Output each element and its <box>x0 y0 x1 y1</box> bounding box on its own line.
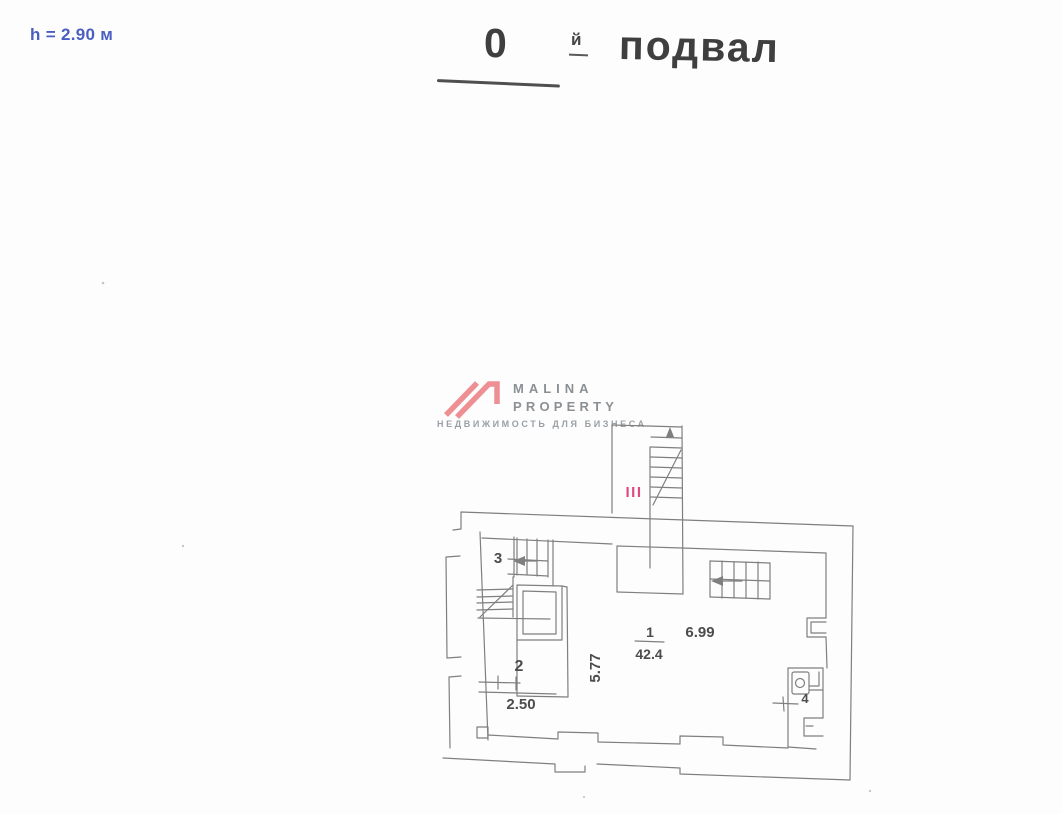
room1-depth-dimension: 5.77 <box>587 653 604 682</box>
plan-walls <box>443 425 853 780</box>
room2-number: 2 <box>515 658 524 675</box>
floor-plan-drawing: III 3 2 2.50 5.77 1 42.4 6.99 4 <box>0 0 1063 814</box>
room2-width-dimension: 2.50 <box>506 696 535 713</box>
entrance-stair-mark: III <box>625 484 642 501</box>
room1-number: 1 <box>646 624 654 640</box>
room1-area: 42.4 <box>635 646 662 662</box>
room1-width-dimension: 6.99 <box>685 624 714 641</box>
scan-specks <box>102 282 872 798</box>
room4-number: 4 <box>801 691 809 706</box>
room3-number: 3 <box>494 550 502 567</box>
